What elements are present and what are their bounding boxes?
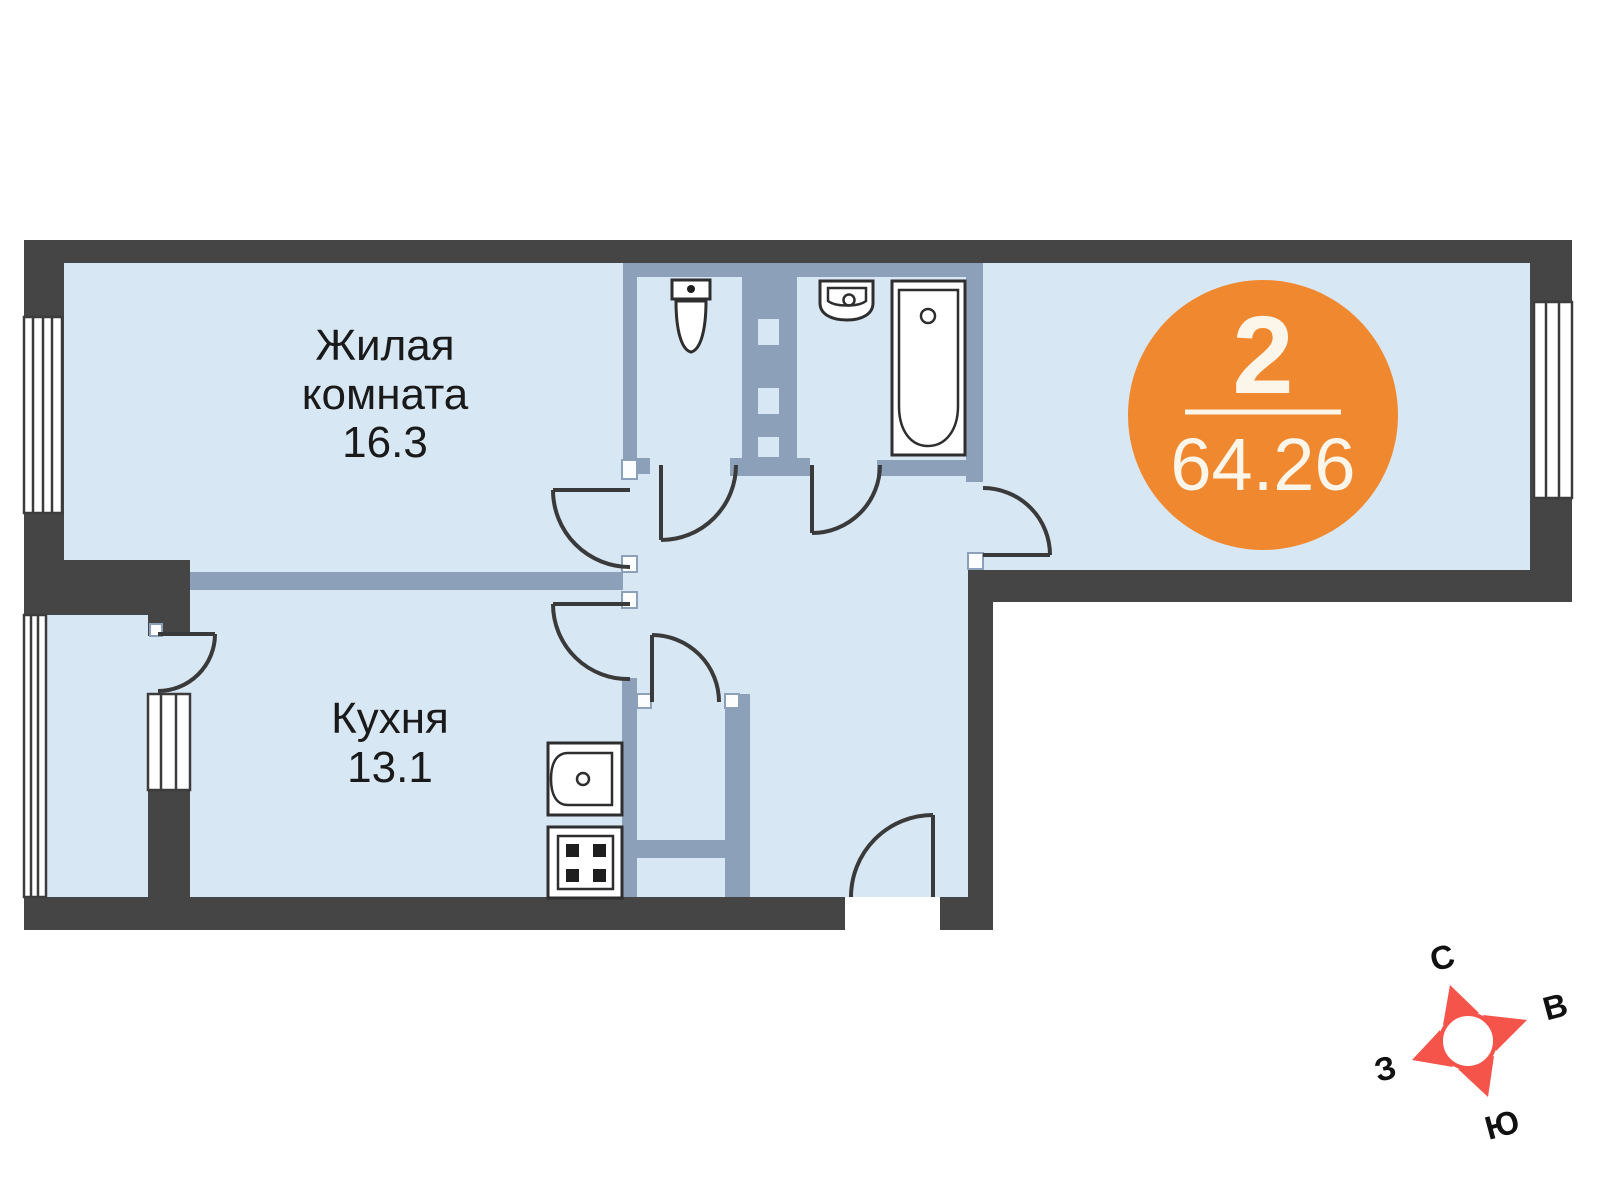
kitchen-area: 13.1	[347, 743, 433, 792]
compass-north-label: С	[1426, 937, 1459, 979]
hall-window	[1534, 302, 1572, 498]
compass-rose: С В З Ю	[1370, 937, 1571, 1147]
stove-icon	[548, 827, 622, 898]
compass-south-label: Ю	[1481, 1102, 1523, 1147]
kitchen-name: Кухня	[331, 694, 449, 743]
compass-east-label: В	[1539, 986, 1572, 1028]
entrance-opening	[845, 897, 940, 930]
badge-room-count: 2	[1232, 294, 1293, 417]
kitchen-sink-icon	[548, 743, 622, 815]
badge-total-area: 64.26	[1170, 423, 1355, 506]
area-badge: 2 64.26	[1128, 280, 1398, 550]
floor-plan: Жилая комната 16.3 Кухня 13.1 2 64.26 С …	[0, 0, 1600, 1200]
bathroom-sink-icon	[820, 281, 873, 320]
living-room-area: 16.3	[342, 418, 428, 467]
living-room-name-line2: комната	[302, 370, 469, 419]
balcony-glazing	[24, 615, 46, 897]
compass-west-label: З	[1370, 1048, 1400, 1089]
compass-hub	[1441, 1014, 1495, 1068]
living-room-window	[24, 317, 62, 513]
bathtub-icon	[892, 281, 965, 455]
kitchen-balcony-window	[148, 694, 190, 790]
room-label-kitchen: Кухня 13.1	[331, 694, 449, 792]
living-room-name-line1: Жилая	[315, 321, 454, 370]
